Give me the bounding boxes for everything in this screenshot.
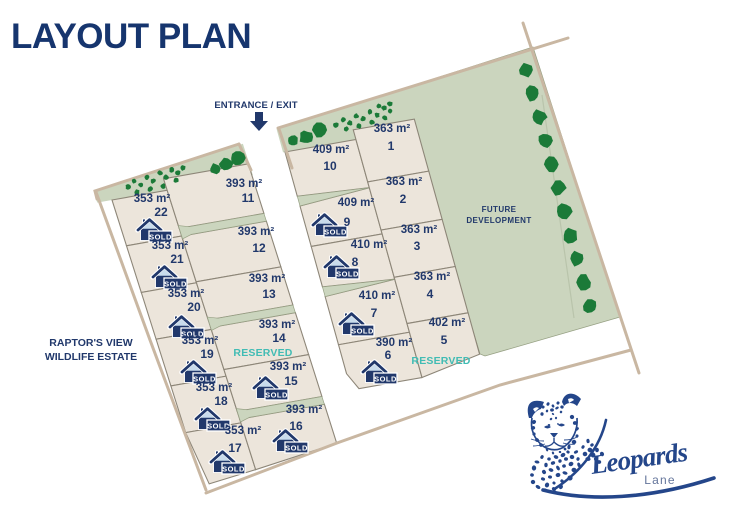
svg-text:390 m²: 390 m² — [376, 337, 413, 349]
svg-text:1: 1 — [388, 139, 395, 153]
svg-text:21: 21 — [170, 252, 184, 266]
svg-text:353 m²: 353 m² — [152, 240, 189, 252]
svg-text:5: 5 — [441, 333, 448, 347]
svg-text:17: 17 — [228, 441, 242, 455]
svg-text:353 m²: 353 m² — [196, 382, 233, 394]
svg-text:363 m²: 363 m² — [374, 123, 411, 135]
svg-text:RAPTOR'S VIEW: RAPTOR'S VIEW — [49, 337, 132, 349]
svg-text:363 m²: 363 m² — [386, 176, 423, 188]
svg-text:353 m²: 353 m² — [168, 288, 205, 300]
svg-text:402 m²: 402 m² — [429, 317, 466, 329]
svg-text:363 m²: 363 m² — [414, 271, 451, 283]
svg-text:RESERVED: RESERVED — [411, 355, 470, 367]
svg-text:ENTRANCE / EXIT: ENTRANCE / EXIT — [214, 100, 297, 111]
svg-text:353 m²: 353 m² — [182, 335, 219, 347]
svg-text:13: 13 — [262, 287, 276, 301]
svg-text:7: 7 — [371, 306, 378, 320]
svg-text:353 m²: 353 m² — [134, 193, 171, 205]
svg-text:2: 2 — [400, 192, 407, 206]
svg-text:12: 12 — [252, 241, 266, 255]
svg-text:RESERVED: RESERVED — [233, 347, 292, 359]
svg-text:409 m²: 409 m² — [313, 144, 350, 156]
svg-text:8: 8 — [352, 255, 359, 269]
svg-text:10: 10 — [323, 159, 337, 173]
svg-text:4: 4 — [427, 287, 434, 301]
svg-text:18: 18 — [214, 394, 228, 408]
svg-text:363 m²: 363 m² — [401, 224, 438, 236]
svg-text:15: 15 — [284, 374, 298, 388]
svg-text:Lane: Lane — [644, 473, 676, 487]
svg-text:393 m²: 393 m² — [259, 319, 296, 331]
svg-text:393 m²: 393 m² — [238, 226, 275, 238]
svg-text:14: 14 — [272, 331, 286, 345]
svg-text:409 m²: 409 m² — [338, 197, 375, 209]
svg-text:393 m²: 393 m² — [286, 404, 323, 416]
svg-text:19: 19 — [200, 347, 214, 361]
svg-text:FUTURE: FUTURE — [482, 205, 517, 214]
svg-text:WILDLIFE ESTATE: WILDLIFE ESTATE — [45, 351, 137, 363]
svg-text:353 m²: 353 m² — [225, 425, 262, 437]
svg-text:3: 3 — [414, 239, 421, 253]
svg-text:393 m²: 393 m² — [226, 178, 263, 190]
svg-text:11: 11 — [242, 191, 255, 205]
svg-text:22: 22 — [154, 205, 168, 219]
svg-text:LAYOUT PLAN: LAYOUT PLAN — [11, 17, 251, 56]
svg-text:410 m²: 410 m² — [359, 290, 396, 302]
svg-text:20: 20 — [187, 300, 201, 314]
svg-text:16: 16 — [289, 419, 303, 433]
svg-text:393 m²: 393 m² — [270, 361, 307, 373]
svg-text:9: 9 — [344, 215, 351, 229]
svg-text:DEVELOPMENT: DEVELOPMENT — [466, 216, 531, 225]
svg-text:393 m²: 393 m² — [249, 273, 286, 285]
svg-text:410 m²: 410 m² — [351, 239, 388, 251]
svg-text:6: 6 — [385, 348, 392, 362]
